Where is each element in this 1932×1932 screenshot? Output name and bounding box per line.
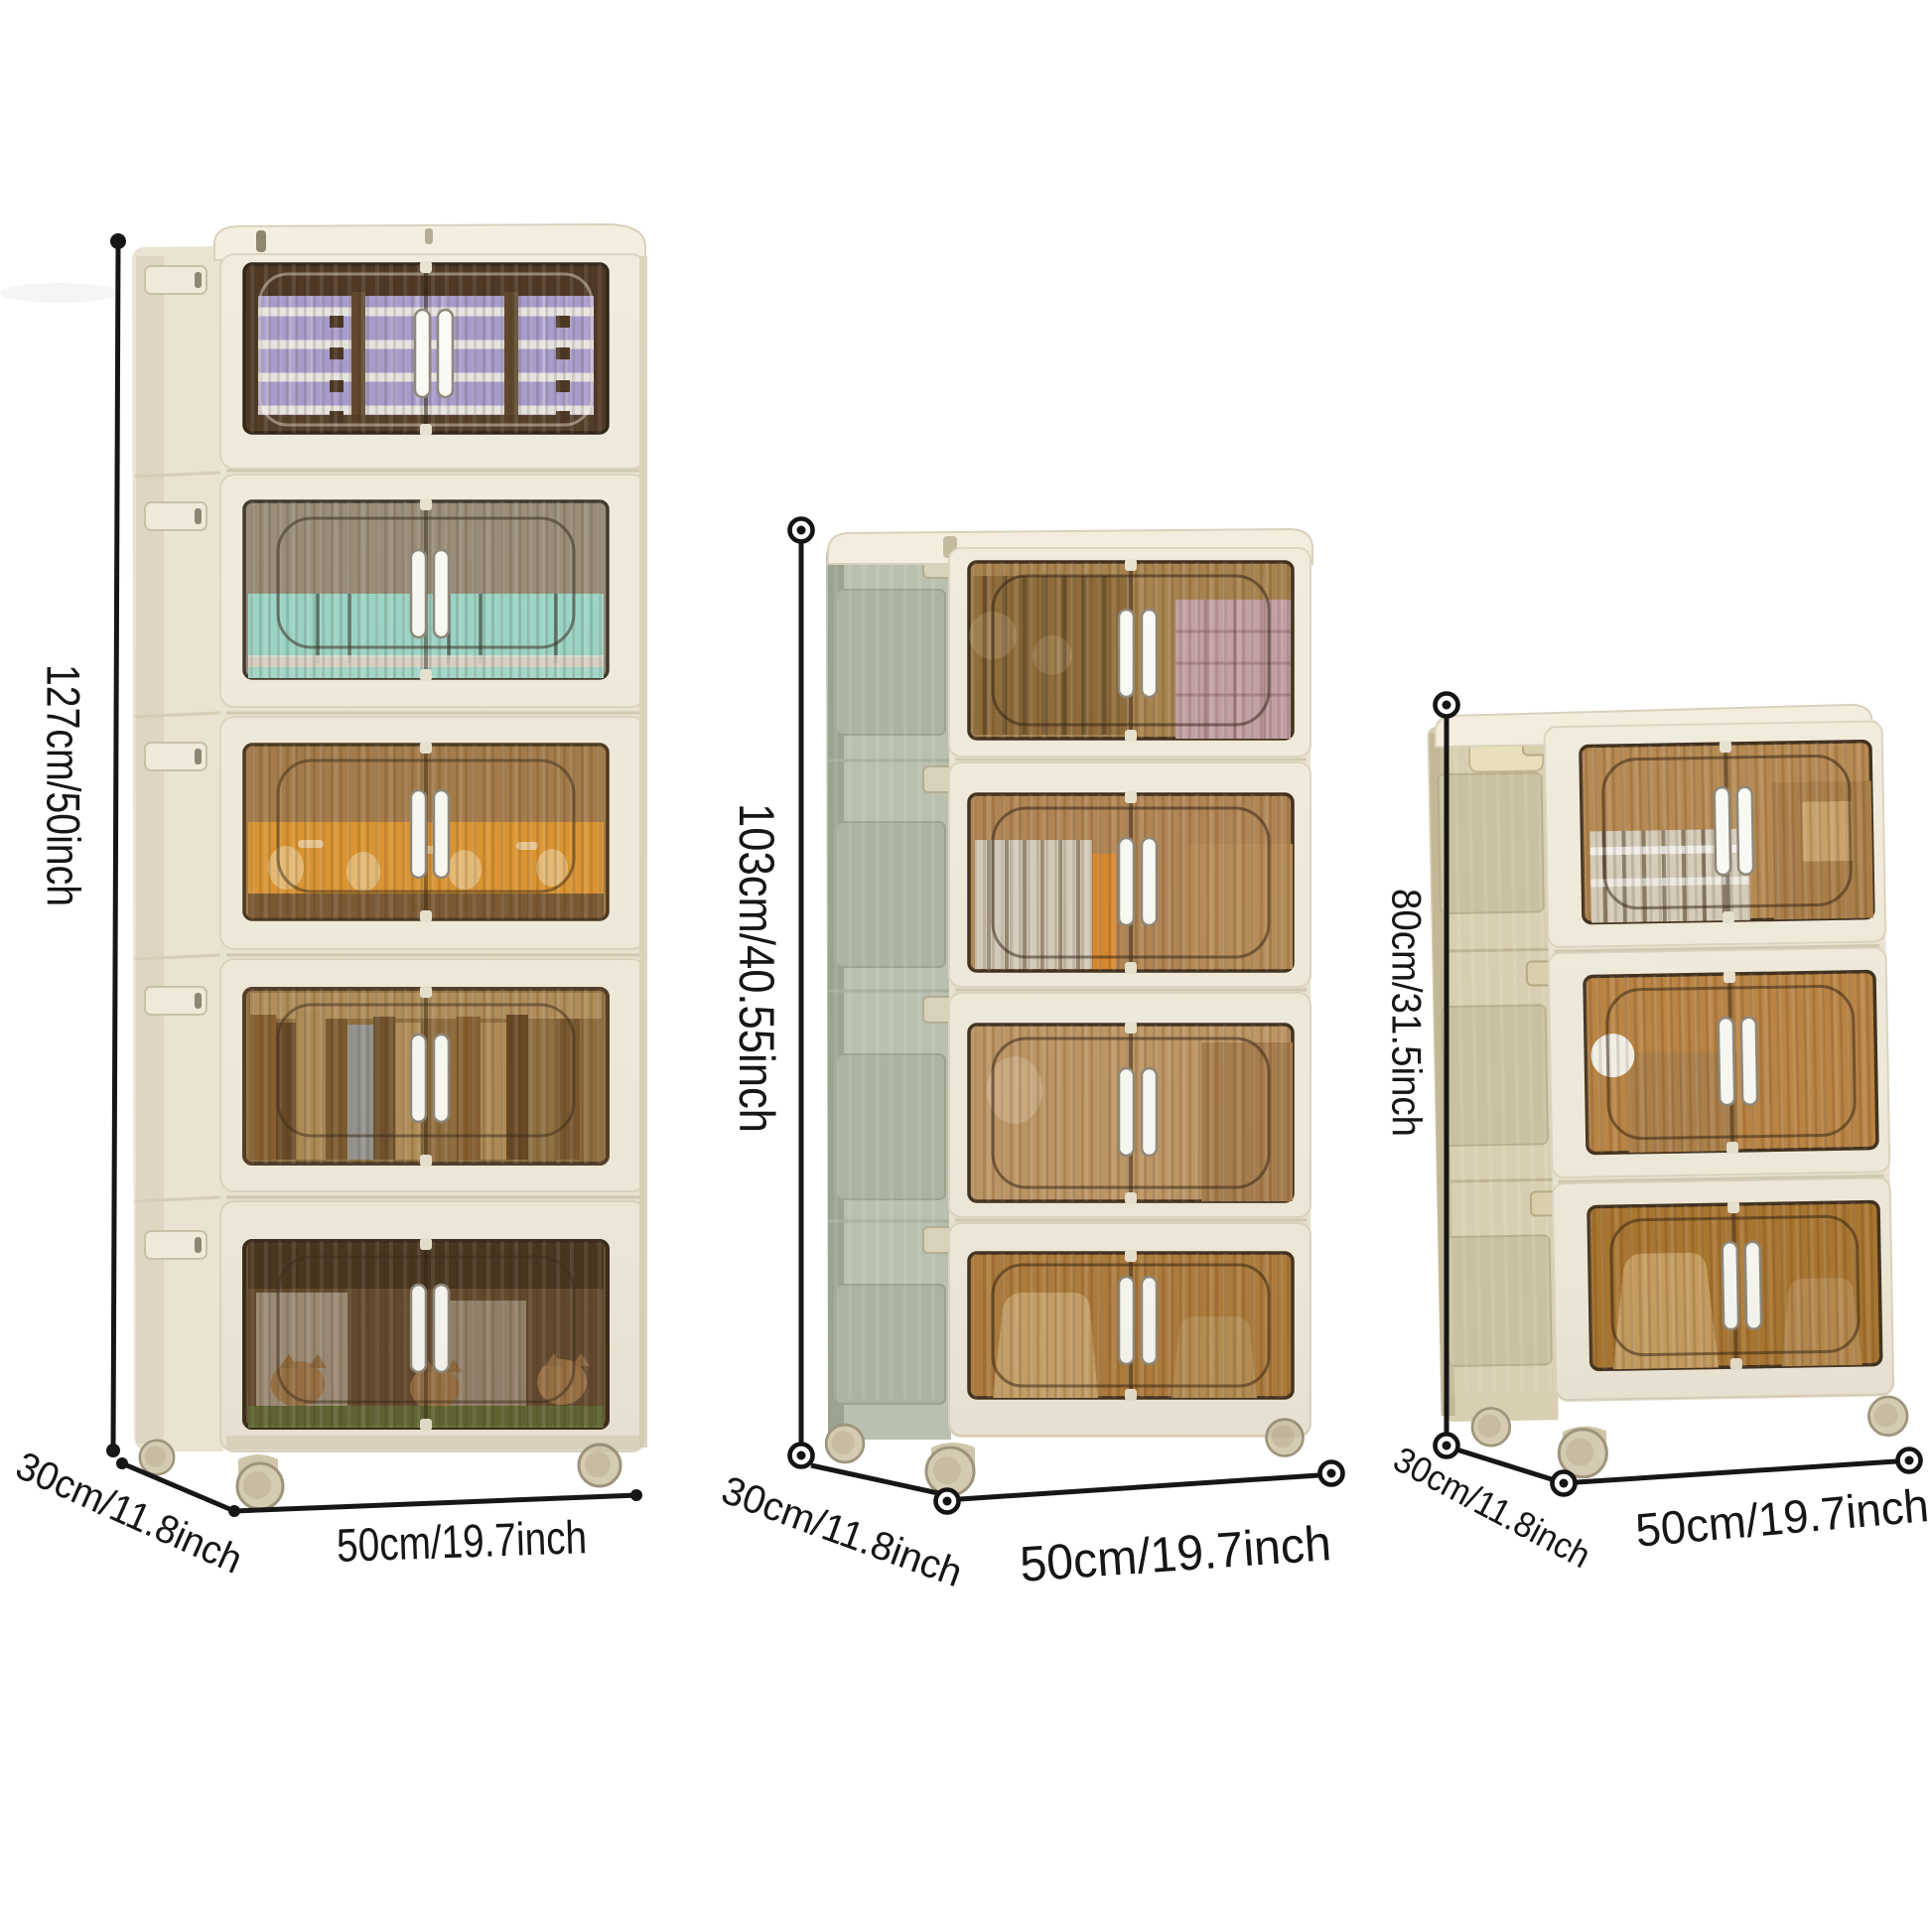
svg-text:50cm/19.7inch: 50cm/19.7inch: [336, 1510, 588, 1572]
svg-text:103cm/40.55inch: 103cm/40.55inch: [729, 803, 784, 1133]
svg-text:80cm/31.5inch: 80cm/31.5inch: [1384, 889, 1431, 1137]
svg-text:127cm/50inch: 127cm/50inch: [38, 664, 90, 906]
